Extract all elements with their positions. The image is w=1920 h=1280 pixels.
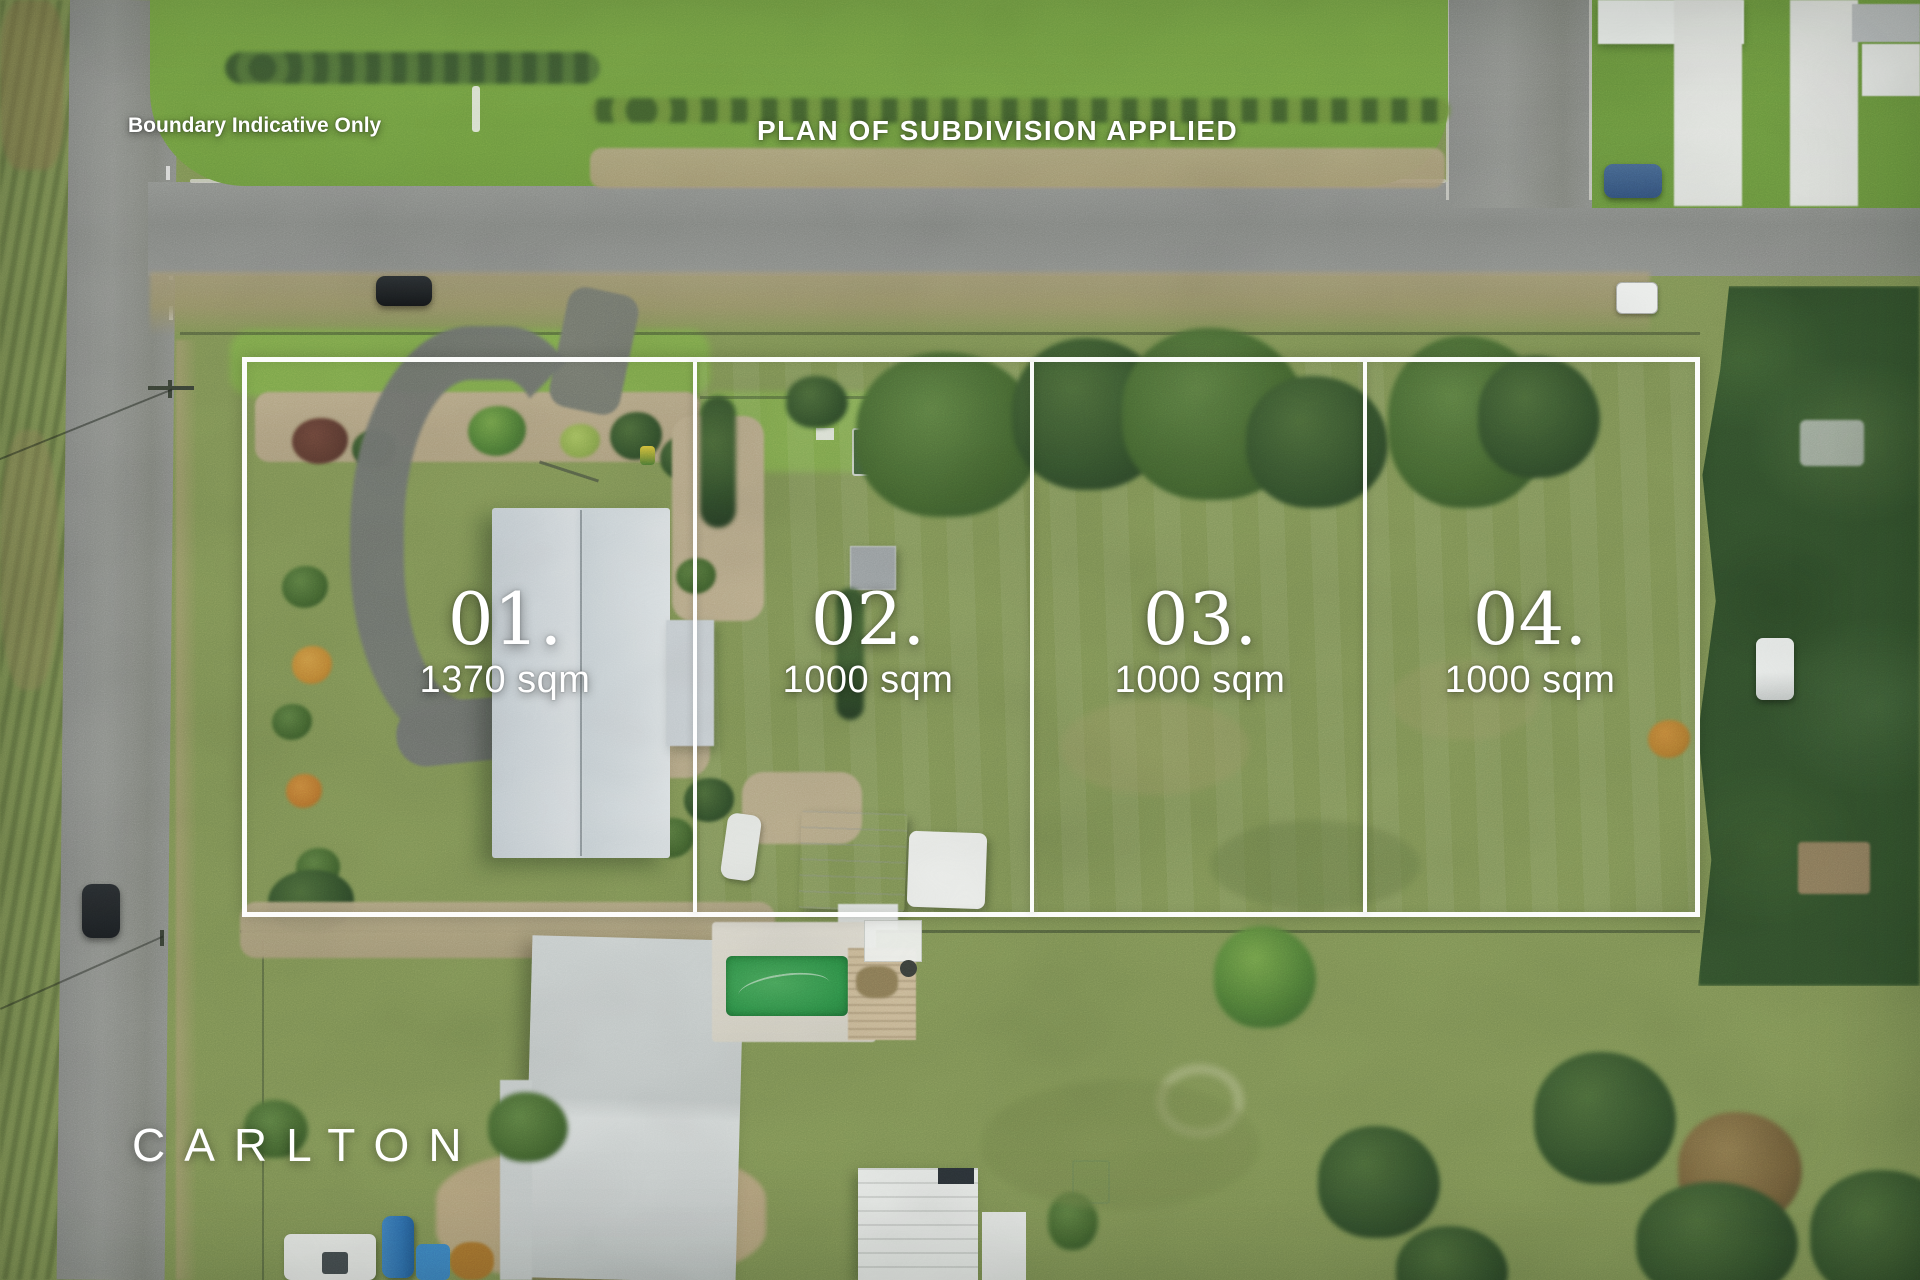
lawn-shade xyxy=(980,1080,1260,1210)
cottage-roof-white xyxy=(858,1168,978,1280)
road-shoulder xyxy=(150,272,1650,336)
wood-pile xyxy=(856,966,898,998)
lot-02-area: 1000 sqm xyxy=(783,659,954,702)
scrub-brown-patch xyxy=(0,0,64,170)
house-roof-white xyxy=(1862,44,1920,96)
lot-04-number: 04. xyxy=(1445,585,1616,653)
lot-divider-2 xyxy=(1030,362,1034,912)
gravel-verge xyxy=(590,148,1445,188)
parked-car-black xyxy=(376,276,432,306)
lot-02-number: 02. xyxy=(783,585,954,653)
tree xyxy=(1810,1170,1920,1280)
concrete-driveway xyxy=(1790,0,1858,206)
tree xyxy=(1396,1226,1508,1280)
hedge-row xyxy=(225,52,600,84)
leaf-litter xyxy=(450,1242,494,1280)
parked-car-dark xyxy=(82,884,120,938)
aerial-subdivision-photo: 01. 1370 sqm 02. 1000 sqm 03. 1000 sqm 0… xyxy=(0,0,1920,1280)
fence-line-top xyxy=(180,332,1700,335)
road-top-right xyxy=(1448,0,1592,208)
round-tree xyxy=(1214,926,1316,1028)
cottage-annex xyxy=(982,1212,1026,1280)
lot-01-label: 01. 1370 sqm xyxy=(420,585,591,702)
tree xyxy=(1318,1126,1440,1238)
parked-car-blue xyxy=(1604,164,1662,198)
shed-tan xyxy=(1798,842,1870,894)
fence-post xyxy=(472,86,480,132)
round-planter xyxy=(900,960,917,977)
boundary-indicative-note: Boundary Indicative Only xyxy=(128,114,381,138)
lot-divider-1 xyxy=(693,362,697,912)
house-roof-grey xyxy=(1852,4,1920,42)
lot-divider-3 xyxy=(1363,362,1367,912)
lot-04-label: 04. 1000 sqm xyxy=(1445,585,1616,702)
lot-03-area: 1000 sqm xyxy=(1115,659,1286,702)
lot-03-label: 03. 1000 sqm xyxy=(1115,585,1286,702)
lot-01-area: 1370 sqm xyxy=(420,659,591,702)
lot-04-area: 1000 sqm xyxy=(1445,659,1616,702)
plan-of-subdivision-banner: PLAN OF SUBDIVISION APPLIED xyxy=(757,115,1238,147)
white-ute xyxy=(1756,638,1794,700)
lot-02-label: 02. 1000 sqm xyxy=(783,585,954,702)
parked-van-white xyxy=(1616,282,1658,314)
small-tree xyxy=(488,1092,568,1162)
concrete-driveway xyxy=(1674,0,1742,206)
carlton-wordmark: CARLTON xyxy=(132,1118,481,1172)
solar-panel xyxy=(938,1168,974,1184)
lot-03-number: 03. xyxy=(1115,585,1286,653)
tree xyxy=(1534,1052,1676,1184)
lot-01-number: 01. xyxy=(420,585,591,653)
scrub-brown-patch xyxy=(0,430,58,690)
blue-bin xyxy=(416,1244,450,1280)
blue-tank xyxy=(382,1216,414,1278)
yard-structure xyxy=(1800,420,1864,466)
ac-unit xyxy=(322,1252,348,1274)
pergola xyxy=(864,920,922,962)
